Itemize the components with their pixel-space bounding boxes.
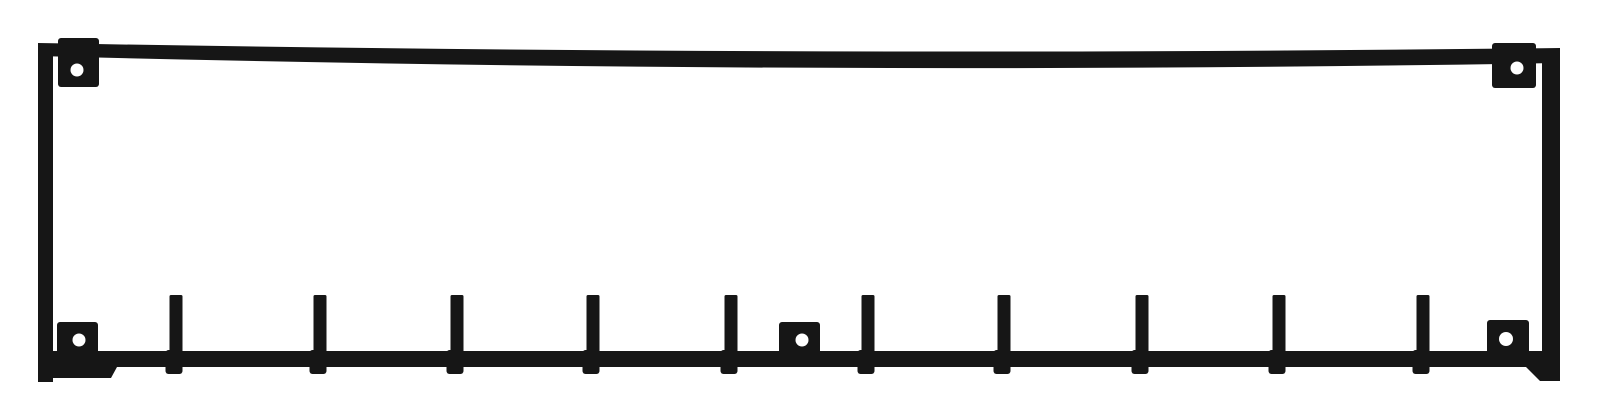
hook-8-post	[1136, 295, 1149, 354]
hook-2-post	[314, 295, 327, 354]
hook-10-post	[1417, 295, 1430, 354]
screw-hole-bottom-left	[73, 334, 86, 347]
hook-7-post	[998, 295, 1011, 354]
frame-top-bar	[38, 43, 1560, 68]
hook-6-post	[862, 295, 875, 354]
screw-hole-bottom-center	[796, 334, 809, 347]
frame-left-bar	[38, 44, 53, 382]
hook-5-post	[725, 295, 738, 354]
screw-hole-bottom-right	[1499, 332, 1513, 346]
hook-4-post	[587, 295, 600, 354]
frame-right-bar	[1542, 49, 1560, 381]
mounting-plate-top-left	[58, 38, 99, 87]
screw-hole-top-left	[71, 64, 84, 77]
hook-1-post	[170, 295, 183, 354]
hook-9-post	[1273, 295, 1286, 354]
coat-rack-illustration	[0, 0, 1600, 415]
product-image	[0, 0, 1600, 415]
product-photo-canvas	[0, 0, 1600, 415]
hook-3-post	[451, 295, 464, 354]
screw-hole-top-right	[1511, 62, 1524, 75]
